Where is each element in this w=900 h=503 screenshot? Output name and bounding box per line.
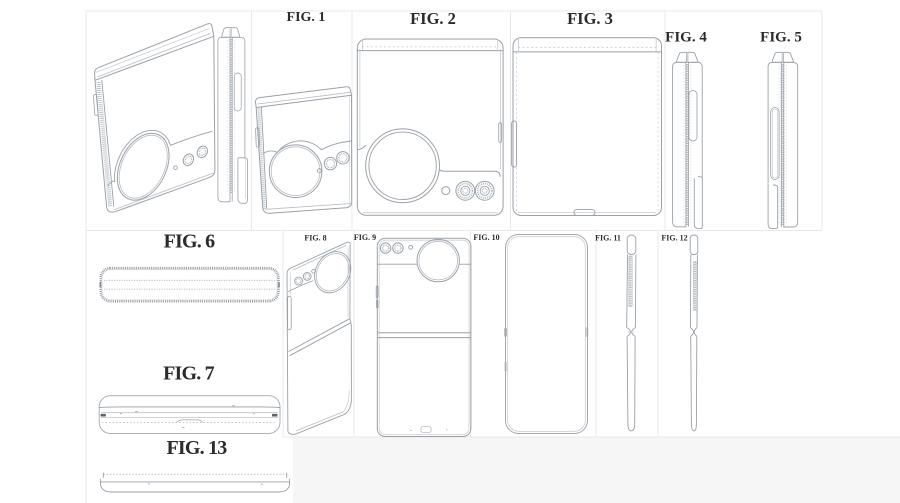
svg-text:FIG. 9: FIG. 9 [354,233,376,242]
svg-text:FIG. 7: FIG. 7 [163,363,215,385]
svg-text:FIG. 2: FIG. 2 [410,9,456,28]
svg-text:FIG. 8: FIG. 8 [304,234,326,243]
svg-text:FIG. 6: FIG. 6 [164,231,216,253]
svg-text:FIG. 3: FIG. 3 [567,9,613,28]
svg-text:FIG. 4: FIG. 4 [665,30,707,46]
svg-text:FIG. 10: FIG. 10 [473,233,499,242]
svg-text:FIG. 12: FIG. 12 [661,234,687,243]
svg-text:FIG. 5: FIG. 5 [760,30,802,46]
svg-text:FIG. 13: FIG. 13 [167,437,228,459]
svg-text:FIG. 11: FIG. 11 [595,234,621,243]
svg-text:FIG. 1: FIG. 1 [287,10,326,25]
